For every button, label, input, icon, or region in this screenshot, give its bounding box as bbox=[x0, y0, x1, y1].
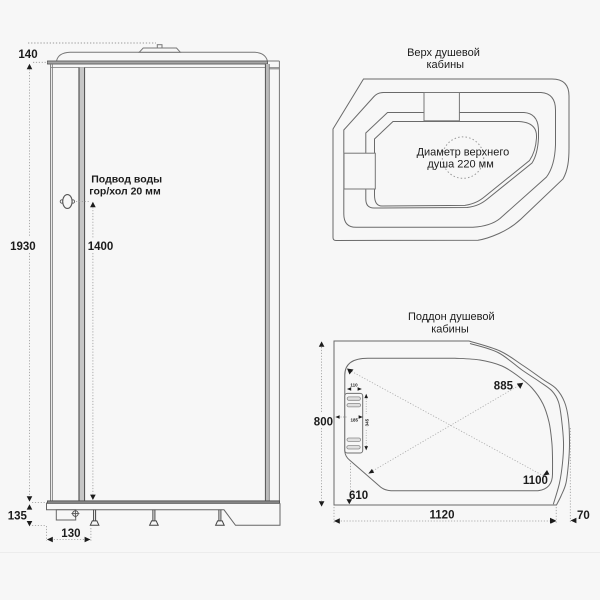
svg-text:130: 130 bbox=[61, 528, 80, 540]
svg-text:1400: 1400 bbox=[88, 241, 114, 253]
svg-text:душа 220 мм: душа 220 мм bbox=[427, 159, 493, 171]
svg-text:гор/хол 20 мм: гор/хол 20 мм bbox=[89, 186, 161, 198]
svg-text:кабины: кабины bbox=[431, 324, 469, 336]
svg-text:885: 885 bbox=[494, 381, 514, 393]
svg-text:140: 140 bbox=[18, 49, 37, 61]
svg-text:Подвод воды: Подвод воды bbox=[91, 174, 162, 186]
svg-text:1120: 1120 bbox=[430, 510, 455, 522]
svg-text:1930: 1930 bbox=[10, 241, 36, 253]
svg-text:1100: 1100 bbox=[523, 475, 548, 487]
svg-text:кабины: кабины bbox=[426, 59, 464, 71]
svg-text:70: 70 bbox=[577, 510, 590, 522]
svg-text:110: 110 bbox=[350, 383, 358, 388]
svg-text:135: 135 bbox=[8, 511, 28, 523]
svg-text:185: 185 bbox=[351, 418, 359, 423]
svg-text:Диаметр верхнего: Диаметр верхнего bbox=[417, 147, 510, 159]
svg-text:345: 345 bbox=[365, 418, 370, 426]
svg-text:610: 610 bbox=[349, 490, 368, 502]
svg-text:Поддон душевой: Поддон душевой bbox=[408, 311, 495, 323]
svg-text:Верх душевой: Верх душевой bbox=[407, 47, 480, 59]
svg-text:800: 800 bbox=[314, 417, 333, 429]
